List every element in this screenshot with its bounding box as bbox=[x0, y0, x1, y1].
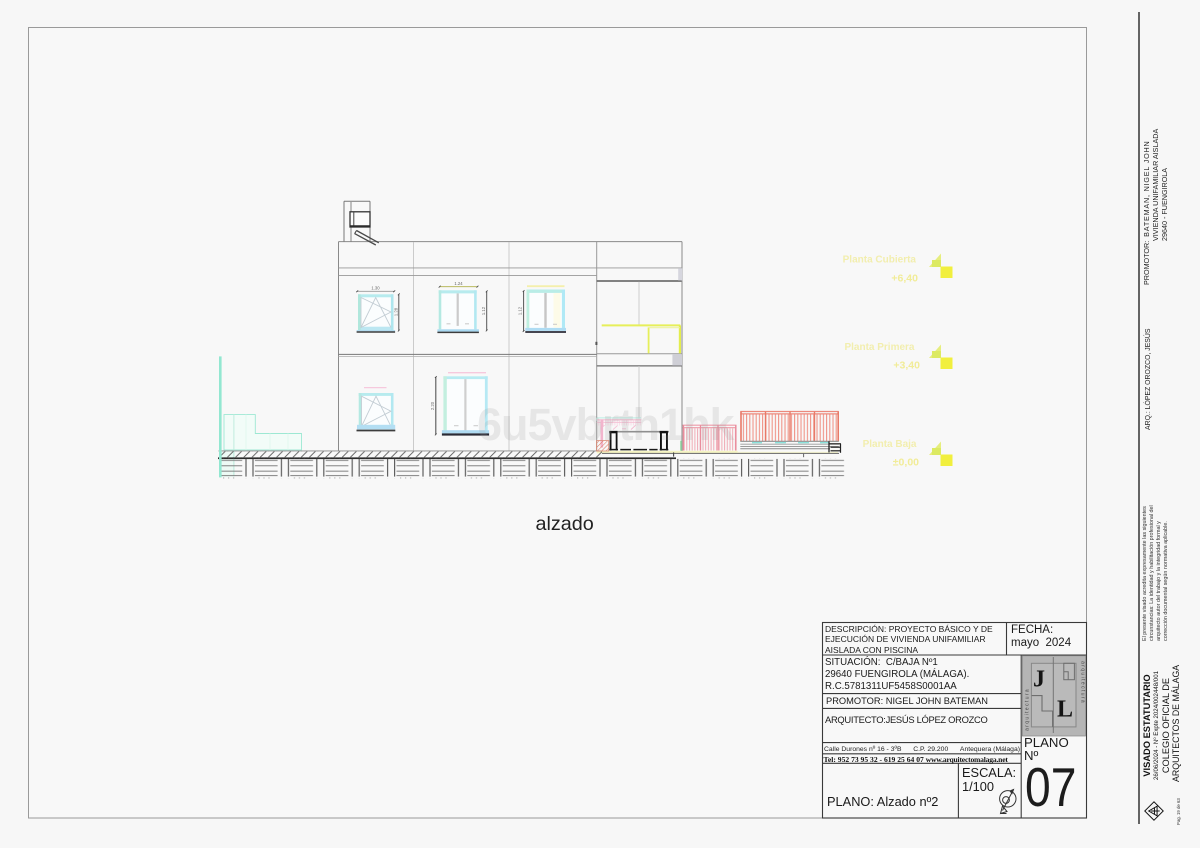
svg-text:6u5vbrth1hk: 6u5vbrth1hk bbox=[477, 399, 736, 450]
svg-text:2.20: 2.20 bbox=[430, 401, 435, 410]
svg-text:1.12: 1.12 bbox=[518, 306, 523, 315]
svg-text:Planta Cubierta: Planta Cubierta bbox=[843, 255, 917, 266]
svg-text:1.28: 1.28 bbox=[393, 307, 398, 316]
svg-text:arquitectura: arquitectura bbox=[1024, 688, 1030, 731]
svg-text:+3,40: +3,40 bbox=[893, 360, 920, 372]
svg-text:alzado: alzado bbox=[536, 513, 594, 535]
svg-text:Planta Baja: Planta Baja bbox=[863, 439, 917, 450]
svg-text:+6,40: +6,40 bbox=[891, 273, 918, 285]
svg-text:L: L bbox=[1057, 697, 1073, 723]
svg-text:±0,00: ±0,00 bbox=[893, 457, 919, 469]
svg-text:1.12: 1.12 bbox=[481, 306, 486, 315]
svg-text:1.24: 1.24 bbox=[454, 281, 463, 286]
svg-text:arquitectura: arquitectura bbox=[1080, 661, 1086, 704]
svg-text:1.30: 1.30 bbox=[371, 286, 380, 291]
svg-text:J: J bbox=[1033, 667, 1045, 693]
svg-text:Planta Primera: Planta Primera bbox=[844, 342, 914, 353]
